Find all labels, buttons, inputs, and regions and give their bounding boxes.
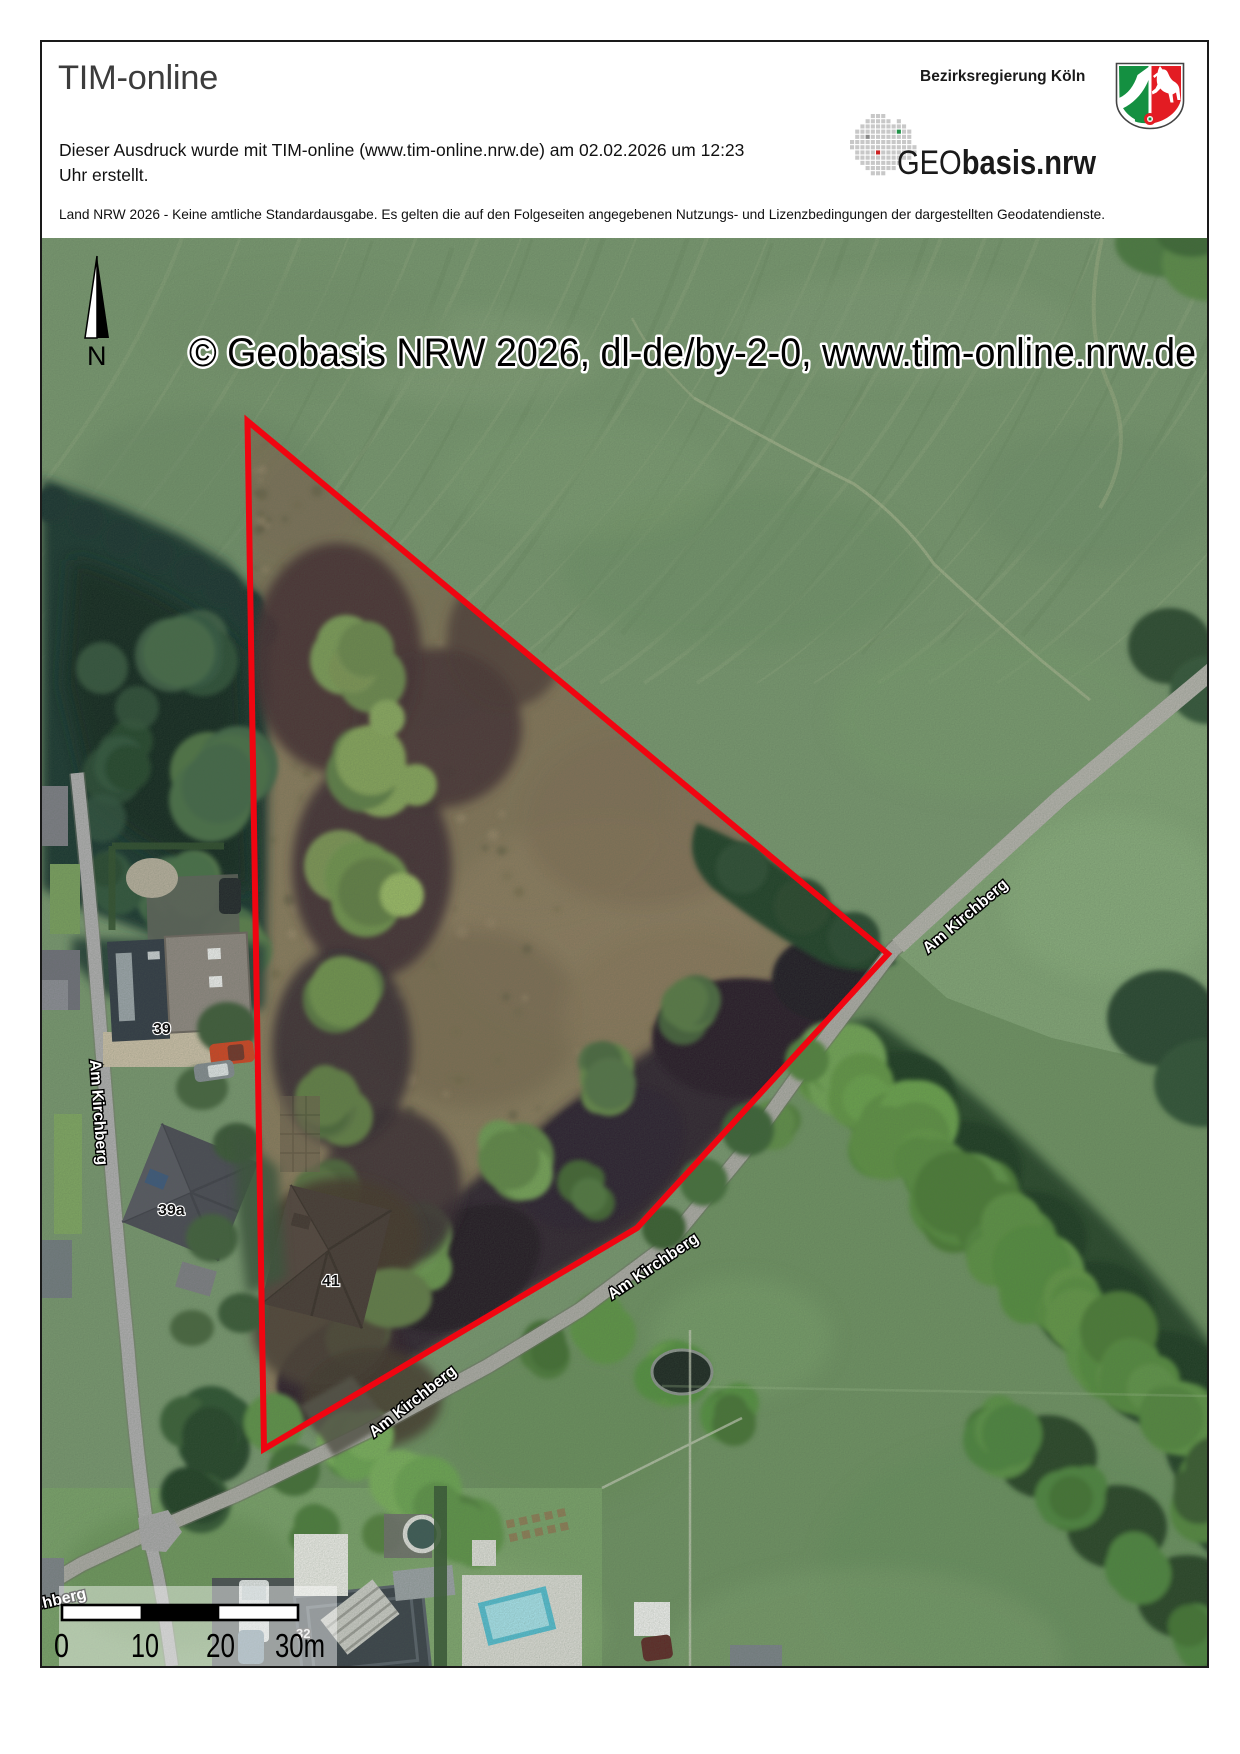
- svg-text:GEObasis.nrw: GEObasis.nrw: [897, 144, 1096, 182]
- svg-text:20: 20: [206, 1627, 235, 1664]
- svg-text:39: 39: [153, 1021, 171, 1038]
- svg-text:© Geobasis NRW 2026, dl-de/by-: © Geobasis NRW 2026, dl-de/by-2-0, www.t…: [189, 331, 1196, 375]
- svg-text:10: 10: [131, 1627, 159, 1664]
- svg-text:N: N: [87, 341, 107, 371]
- svg-text:0: 0: [54, 1627, 69, 1664]
- svg-text:41: 41: [322, 1273, 340, 1290]
- svg-text:39a: 39a: [158, 1202, 185, 1219]
- svg-text:30m: 30m: [275, 1627, 325, 1664]
